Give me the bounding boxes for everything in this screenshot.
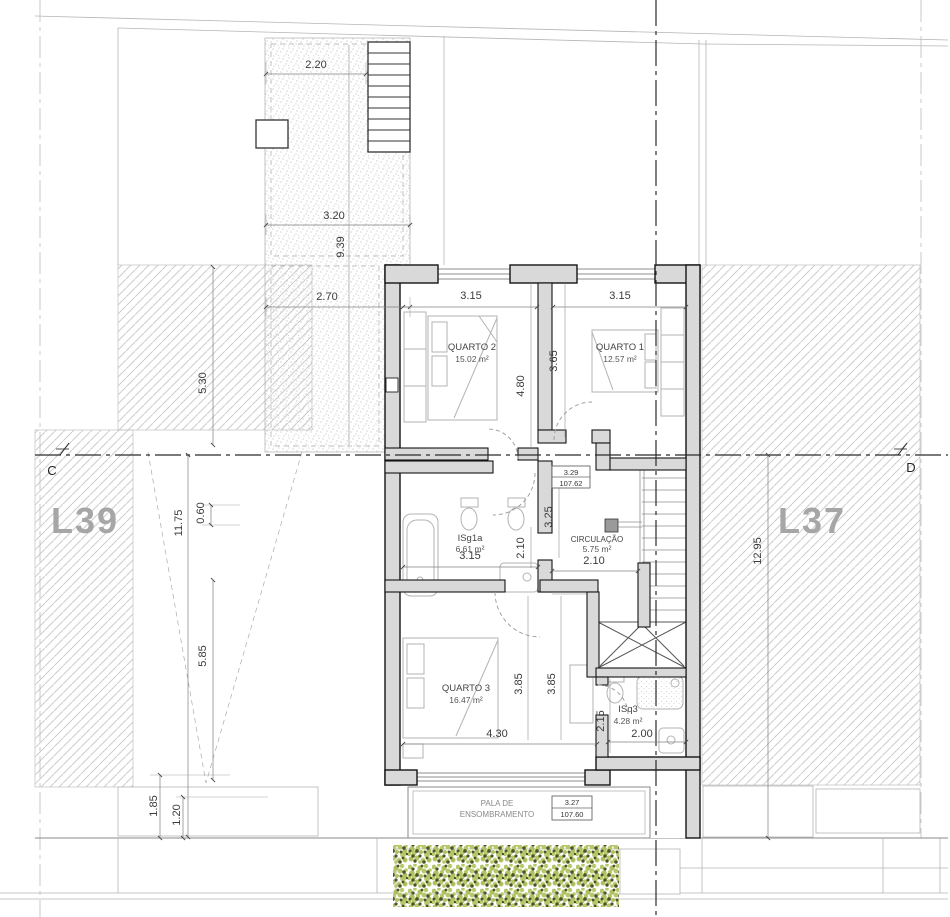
dim-bottom-a: 1.85 <box>148 795 160 816</box>
room-area-quarto1: 12.57 m² <box>603 354 637 364</box>
section-marker-d-label: D <box>906 460 915 475</box>
pala-label-line2: ENSOMBRAMENTO <box>460 810 535 819</box>
dim-left-offset: 0.60 <box>195 502 207 523</box>
dim-q3-depth-b: 3.85 <box>546 673 558 694</box>
lot-label-right: L37 <box>778 500 846 541</box>
stair-newel-post <box>605 519 618 532</box>
dim-left-lower: 5.85 <box>197 645 209 666</box>
dim-isg1a-door: 2.10 <box>515 537 527 558</box>
floor-plan-svg: C D 2.20 <box>0 0 950 917</box>
room-label-quarto2: QUARTO 2 <box>448 342 496 353</box>
room-area-quarto3: 16.47 m² <box>449 695 483 705</box>
room-area-circulacao: 5.75 m² <box>583 544 612 554</box>
dim-patio-vertical: 9.39 <box>335 236 347 257</box>
hedge <box>393 845 619 907</box>
stair-void <box>598 622 686 668</box>
level-marker-upper: 3.29 107.62 <box>552 466 590 488</box>
room-area-isg1a: 6.61 m² <box>456 544 485 554</box>
dim-bottom-b: 1.20 <box>171 804 183 825</box>
exterior-stair <box>368 42 410 152</box>
patio-access-box <box>256 120 288 148</box>
room-area-quarto2: 15.02 m² <box>455 354 489 364</box>
dim-hall-depth: 3.25 <box>543 506 555 527</box>
level-upper-abs: 107.62 <box>560 479 583 488</box>
room-label-isq3: ISq3 <box>618 704 638 715</box>
level-upper-rel: 3.29 <box>564 468 579 477</box>
level-lower-rel: 3.27 <box>565 798 580 807</box>
floor-plan-page: C D 2.20 <box>0 0 950 917</box>
level-marker-lower: 3.27 107.60 <box>552 796 592 820</box>
section-marker-c-label: C <box>47 463 56 478</box>
dim-left-total: 11.75 <box>173 510 185 537</box>
dim-q1-depth: 3.65 <box>548 350 560 371</box>
shower-icon <box>637 676 683 709</box>
lot-label-left: L39 <box>51 500 119 541</box>
room-label-quarto3: QUARTO 3 <box>442 683 490 694</box>
ramp-lines <box>148 452 302 783</box>
dim-q2-width: 3.15 <box>460 290 481 302</box>
dim-patio-mid: 3.20 <box>323 210 344 222</box>
room-label-quarto1: QUARTO 1 <box>596 342 644 353</box>
dim-q1-width: 3.15 <box>609 290 630 302</box>
dim-right-total: 12.95 <box>752 537 764 565</box>
dim-q2-depth: 4.80 <box>515 375 527 396</box>
dim-patio-top: 2.20 <box>305 59 326 71</box>
wall-niche <box>386 378 398 392</box>
pala-label-line1: PALA DE <box>481 799 514 808</box>
dim-q3-depth-a: 3.85 <box>513 673 525 694</box>
dim-circ-width: 2.10 <box>583 555 604 567</box>
dim-isq3-width: 2.00 <box>631 728 652 740</box>
room-area-isq3: 4.28 m² <box>614 716 643 726</box>
dim-left-upper: 5.30 <box>197 372 209 393</box>
room-label-circulacao: CIRCULAÇÃO <box>571 535 623 544</box>
dim-isq3-depth: 2.15 <box>595 710 607 731</box>
room-label-isg1a: ISg1a <box>458 533 484 544</box>
dim-q3-width: 4.30 <box>486 728 507 740</box>
level-lower-abs: 107.60 <box>561 810 584 819</box>
dim-patio-bottom: 2.70 <box>316 291 337 303</box>
